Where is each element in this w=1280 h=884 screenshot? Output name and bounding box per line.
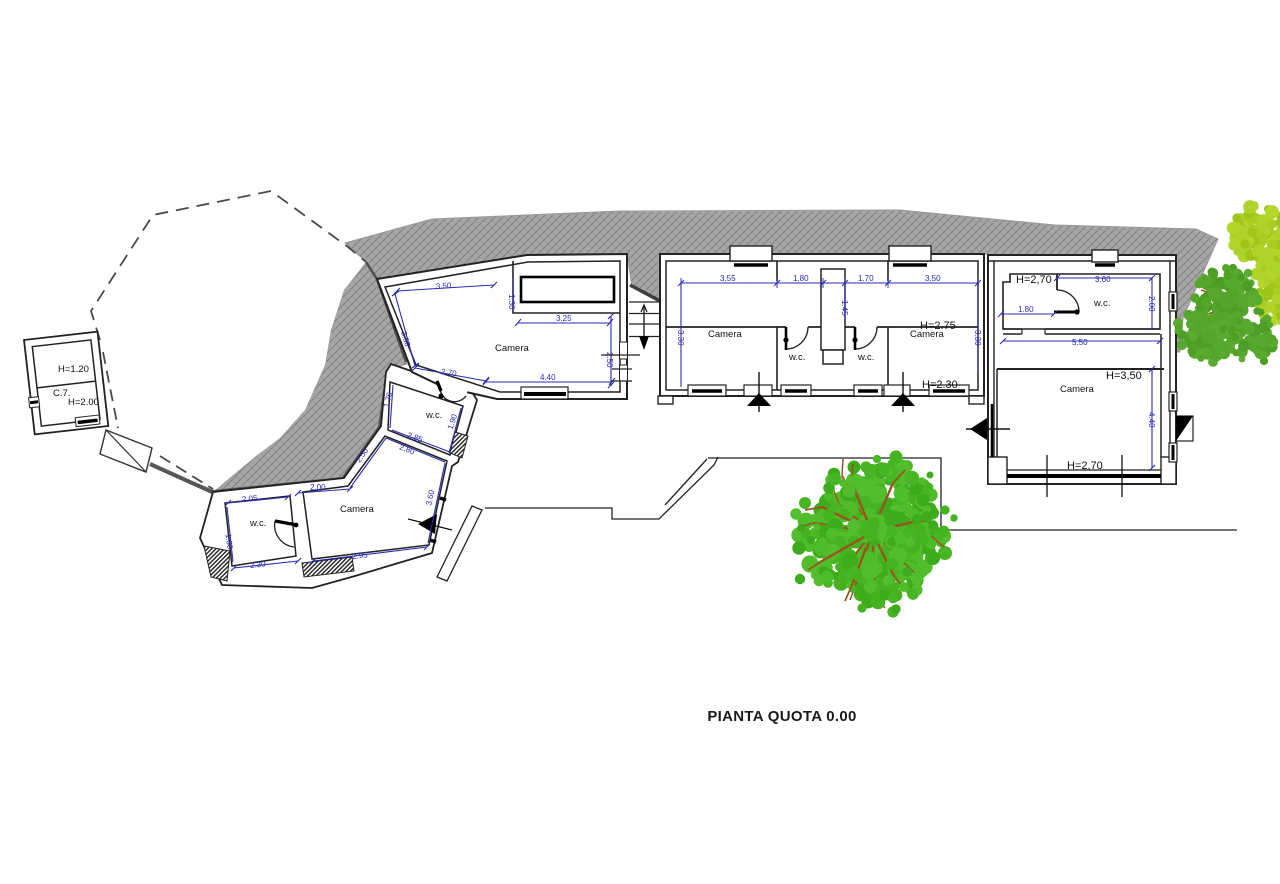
svg-text:Camera: Camera <box>495 343 530 354</box>
svg-text:H=2.30: H=2.30 <box>922 379 958 391</box>
svg-text:H=1.20: H=1.20 <box>58 364 89 375</box>
svg-text:1.30: 1.30 <box>507 294 516 310</box>
svg-text:w.c.: w.c. <box>788 352 805 363</box>
svg-text:2.30: 2.30 <box>250 559 267 570</box>
svg-text:3.30: 3.30 <box>973 330 982 346</box>
svg-text:H=2,70: H=2,70 <box>1067 460 1103 472</box>
svg-text:Camera: Camera <box>708 329 743 340</box>
svg-text:3.50: 3.50 <box>436 281 453 291</box>
svg-text:w.c.: w.c. <box>425 410 442 421</box>
svg-text:Camera: Camera <box>340 504 375 515</box>
svg-text:w.c.: w.c. <box>1093 298 1110 309</box>
svg-text:3.50: 3.50 <box>925 274 941 283</box>
svg-text:w.c.: w.c. <box>857 352 874 363</box>
svg-text:2.05: 2.05 <box>242 493 259 504</box>
svg-text:2.00: 2.00 <box>1147 296 1156 312</box>
svg-text:4.40: 4.40 <box>540 373 556 382</box>
svg-text:1.80: 1.80 <box>1018 305 1034 314</box>
svg-text:1.80: 1.80 <box>793 274 809 283</box>
svg-text:w.c.: w.c. <box>249 518 266 529</box>
svg-text:2.00: 2.00 <box>310 483 326 492</box>
svg-text:1.45: 1.45 <box>840 300 849 316</box>
svg-text:5.50: 5.50 <box>1072 338 1088 347</box>
svg-text:3.30: 3.30 <box>676 330 685 346</box>
svg-text:PIANTA QUOTA 0.00: PIANTA QUOTA 0.00 <box>707 708 856 725</box>
svg-text:H=2,70: H=2,70 <box>1016 274 1052 286</box>
svg-text:Camera: Camera <box>1060 384 1095 395</box>
svg-text:3.60: 3.60 <box>1095 275 1111 284</box>
svg-text:H=2.75: H=2.75 <box>920 320 956 332</box>
svg-text:3.55: 3.55 <box>720 274 736 283</box>
svg-text:4.40: 4.40 <box>1147 412 1156 428</box>
svg-text:H=3,50: H=3,50 <box>1106 370 1142 382</box>
svg-text:3.25: 3.25 <box>556 314 572 323</box>
svg-text:H=2.00: H=2.00 <box>68 397 99 408</box>
svg-text:1.70: 1.70 <box>858 274 874 283</box>
